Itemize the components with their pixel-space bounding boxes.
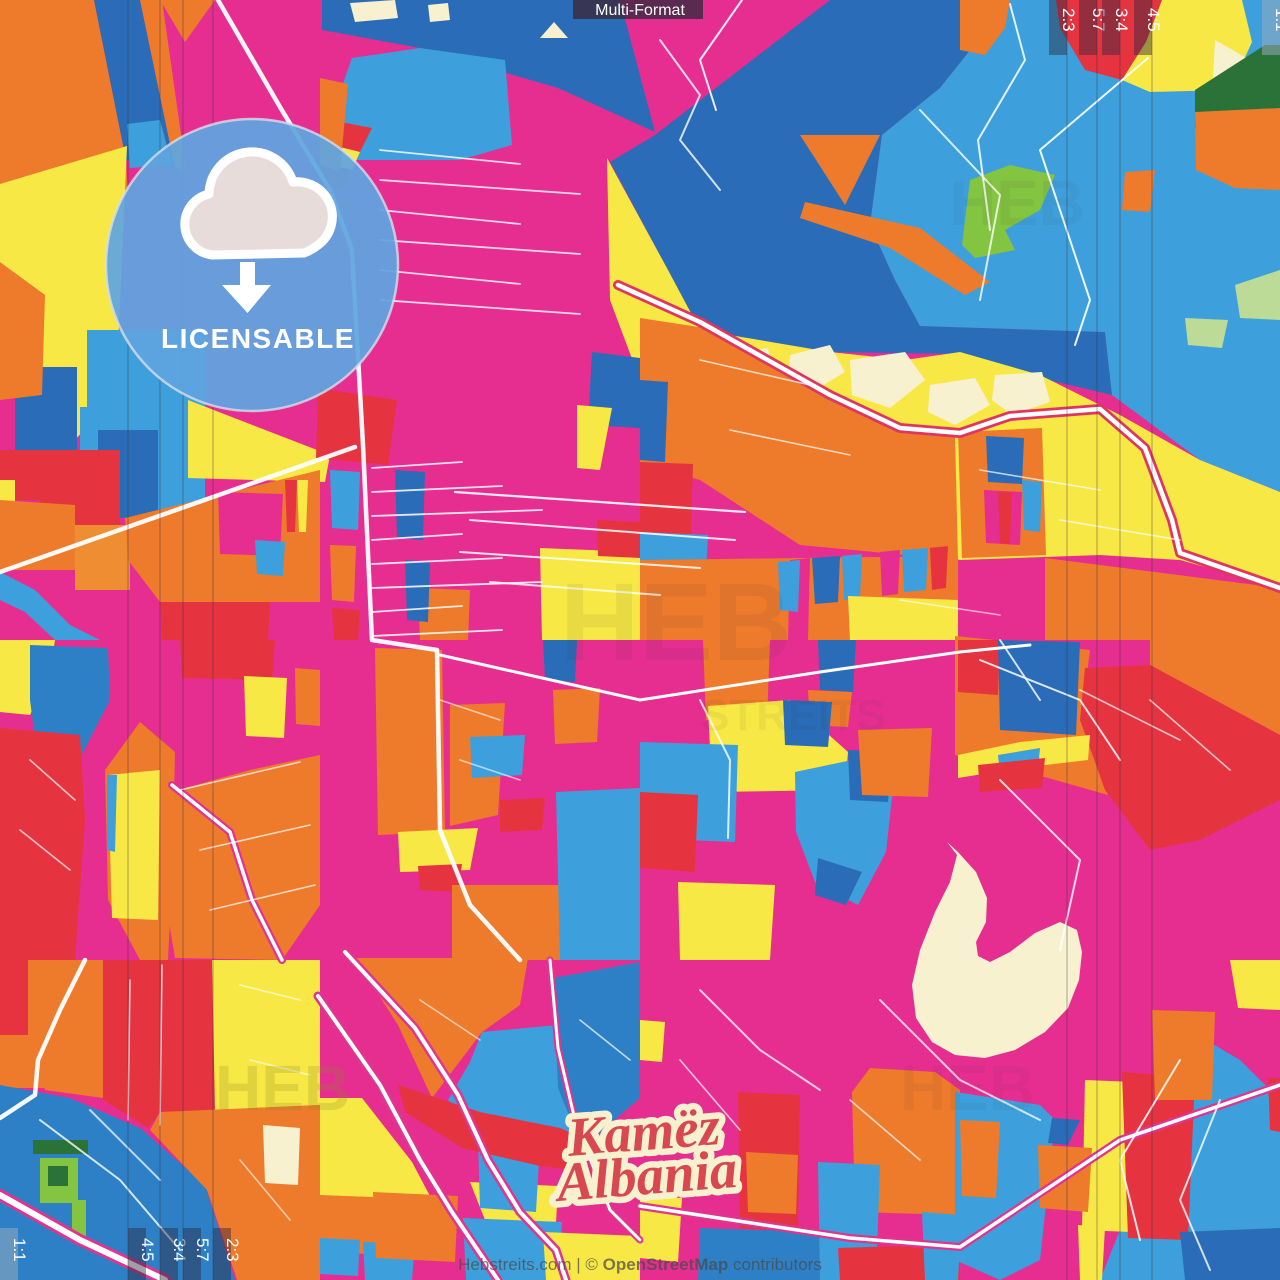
svg-text:1:1: 1:1 [10, 1238, 29, 1262]
svg-text:LICENSABLE: LICENSABLE [161, 323, 355, 354]
svg-text:2:3: 2:3 [223, 1238, 242, 1262]
svg-text:Hebstreits.com | © OpenStreetM: Hebstreits.com | © OpenStreetMap contrib… [458, 1255, 822, 1274]
svg-text:2:3: 2:3 [1059, 8, 1078, 32]
svg-text:4:5: 4:5 [1144, 8, 1163, 32]
svg-text:HEB: HEB [950, 167, 1085, 239]
svg-text:5:7: 5:7 [193, 1238, 212, 1262]
svg-text:3:4: 3:4 [1112, 8, 1131, 32]
svg-text:Multi-Format: Multi-Format [595, 2, 685, 19]
svg-text:HEB: HEB [900, 1052, 1035, 1124]
svg-text:HEB: HEB [560, 561, 792, 684]
svg-text:1:1: 1:1 [1272, 8, 1280, 32]
svg-text:HEB: HEB [215, 1052, 350, 1124]
svg-text:4:5: 4:5 [138, 1238, 157, 1262]
svg-text:STREITS: STREITS [700, 691, 886, 740]
